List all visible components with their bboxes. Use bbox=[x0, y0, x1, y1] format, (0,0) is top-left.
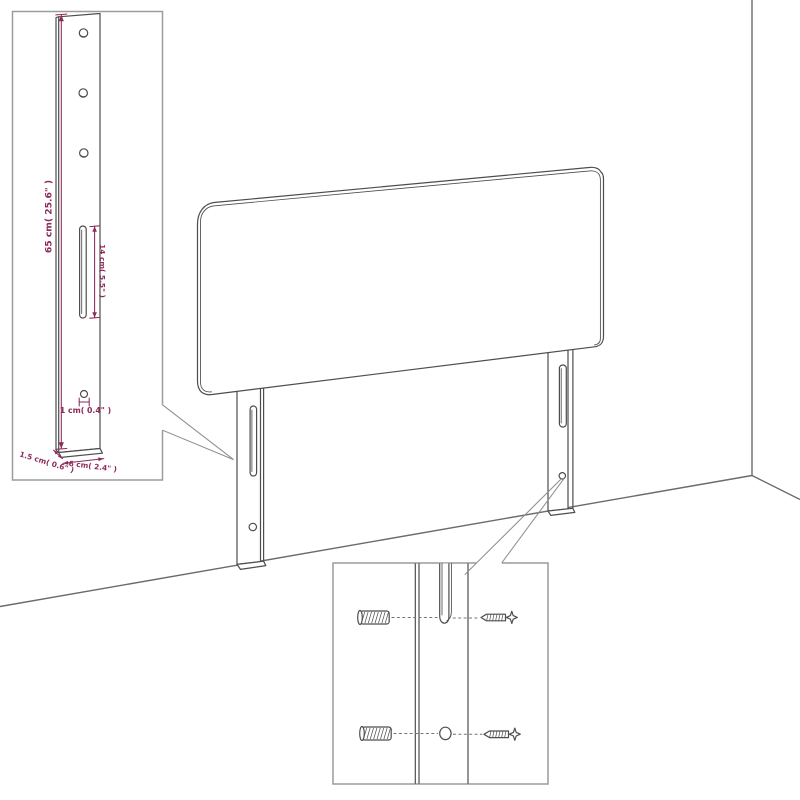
leader-line bbox=[163, 430, 234, 459]
slot-dimension-label: 14 cm( 5.5" ) bbox=[98, 244, 107, 298]
leg-inset-leader-lines bbox=[163, 405, 234, 460]
wall-plug-icon bbox=[360, 727, 392, 741]
hole-dimension-label: 1 cm( 0.4" ) bbox=[60, 406, 111, 415]
leader-line bbox=[163, 405, 234, 460]
leader-line bbox=[502, 478, 564, 562]
right-leg-side-edge bbox=[568, 349, 573, 508]
headboard-panel bbox=[198, 167, 604, 394]
right-leg-screw-hole bbox=[559, 473, 565, 479]
left-leg-screw-hole bbox=[249, 523, 256, 530]
leg-post-small-hole bbox=[81, 391, 88, 398]
leader-line bbox=[465, 479, 561, 575]
leg-post-slot bbox=[80, 226, 87, 318]
wall-plug-icon bbox=[358, 611, 390, 625]
right-leg bbox=[548, 349, 575, 515]
strip-slot bbox=[440, 564, 449, 624]
hardware-inset bbox=[333, 563, 548, 784]
right-leg-slot bbox=[559, 365, 566, 427]
leg-dimension-inset: 65 cm( 25.6" ) 14 cm( 5.5" ) 1 cm( 0.4" … bbox=[13, 12, 163, 481]
left-leg bbox=[237, 387, 266, 569]
headboard-assembly-diagram: 65 cm( 25.6" ) 14 cm( 5.5" ) 1 cm( 0.4" … bbox=[0, 0, 800, 800]
leg-post bbox=[56, 14, 102, 458]
height-dimension-label: 65 cm( 25.6" ) bbox=[44, 180, 55, 253]
strip-screw-hole bbox=[440, 727, 451, 739]
left-leg-slot bbox=[250, 406, 257, 476]
